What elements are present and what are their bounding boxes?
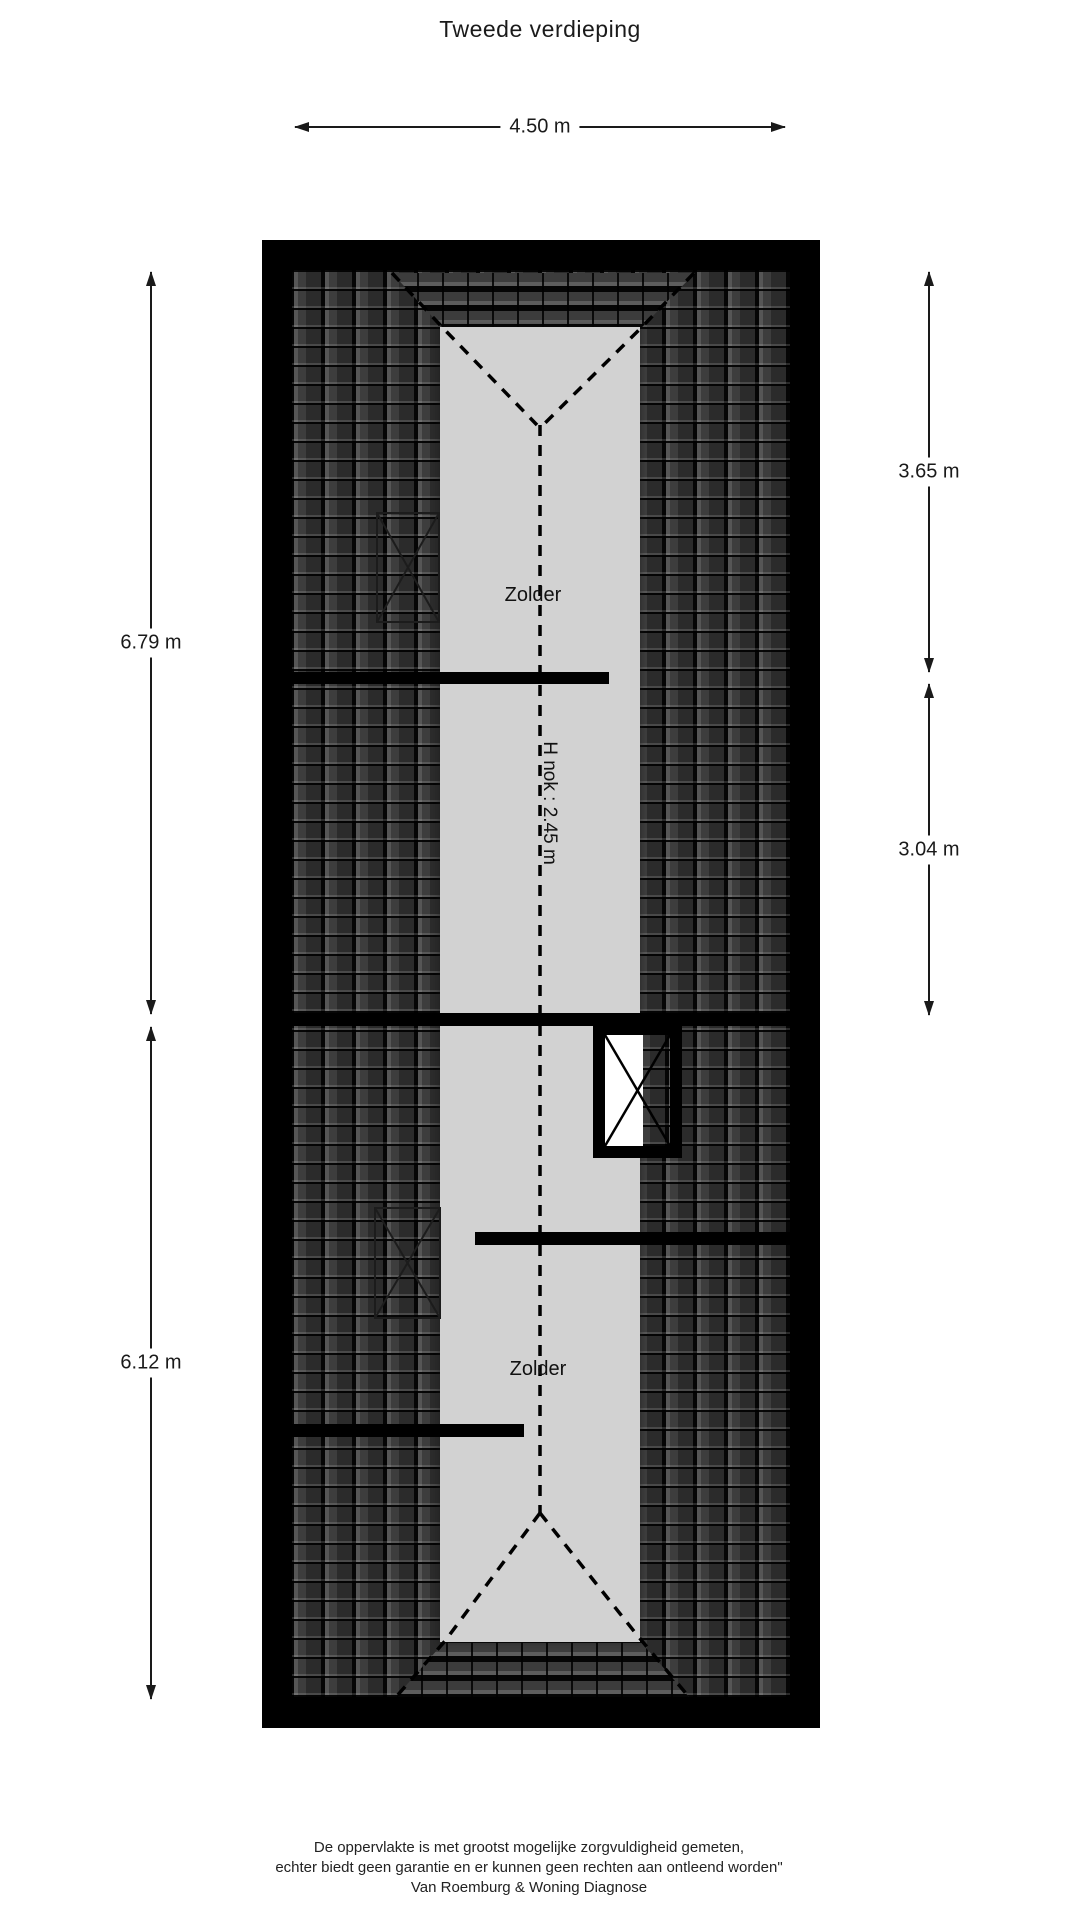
arrowhead-down-icon (924, 658, 934, 673)
interior-wall-upper (262, 672, 609, 684)
stairwell-opening (593, 1023, 682, 1158)
dimension-left-lower: 6.12 m (143, 1026, 160, 1700)
floor-plan (262, 240, 820, 1728)
dimension-left-upper: 6.79 m (143, 271, 160, 1015)
disclaimer-line: echter biedt geen garantie en er kunnen … (0, 1858, 1058, 1878)
ridge-height-label: H nok : 2.45 m (538, 741, 560, 865)
roof-surface (292, 270, 790, 1697)
disclaimer-line: De oppervlakte is met grootst mogelijke … (0, 1838, 1058, 1858)
stairwell-void (605, 1035, 643, 1146)
dimension-label: 6.79 m (114, 629, 187, 658)
dimension-right-upper: 3.65 m (921, 271, 938, 673)
dimension-label: 4.50 m (500, 115, 579, 140)
disclaimer-line: Van Roemburg & Woning Diagnose (0, 1878, 1058, 1898)
dividing-wall (262, 1013, 820, 1026)
floorplan-page: Tweede verdieping 4.50 m 6.79 m 6.12 m 3… (0, 0, 1080, 1920)
room-label-zolder-upper: Zolder (463, 584, 603, 607)
room-label-zolder-lower: Zolder (468, 1358, 608, 1381)
arrowhead-down-icon (146, 1000, 156, 1015)
arrowhead-up-icon (924, 683, 934, 698)
arrowhead-up-icon (146, 1026, 156, 1041)
attic-floor-area (440, 327, 640, 1642)
dimension-label: 3.04 m (892, 835, 965, 864)
arrowhead-down-icon (146, 1685, 156, 1700)
arrowhead-down-icon (924, 1001, 934, 1016)
interior-wall-lower (262, 1424, 524, 1437)
roof-top-hip-face (392, 270, 695, 327)
interior-wall-middle (475, 1232, 820, 1245)
roof-bottom-hip-face (396, 1641, 689, 1697)
dimension-width: 4.50 m (295, 119, 785, 136)
arrowhead-up-icon (146, 271, 156, 286)
page-title: Tweede verdieping (0, 16, 1080, 43)
dimension-label: 6.12 m (114, 1349, 187, 1378)
disclaimer: De oppervlakte is met grootst mogelijke … (0, 1838, 1058, 1898)
arrowhead-up-icon (924, 271, 934, 286)
arrowhead-left-icon (294, 122, 309, 132)
dimension-label: 3.65 m (892, 458, 965, 487)
arrowhead-right-icon (771, 122, 786, 132)
dimension-right-lower: 3.04 m (921, 683, 938, 1016)
